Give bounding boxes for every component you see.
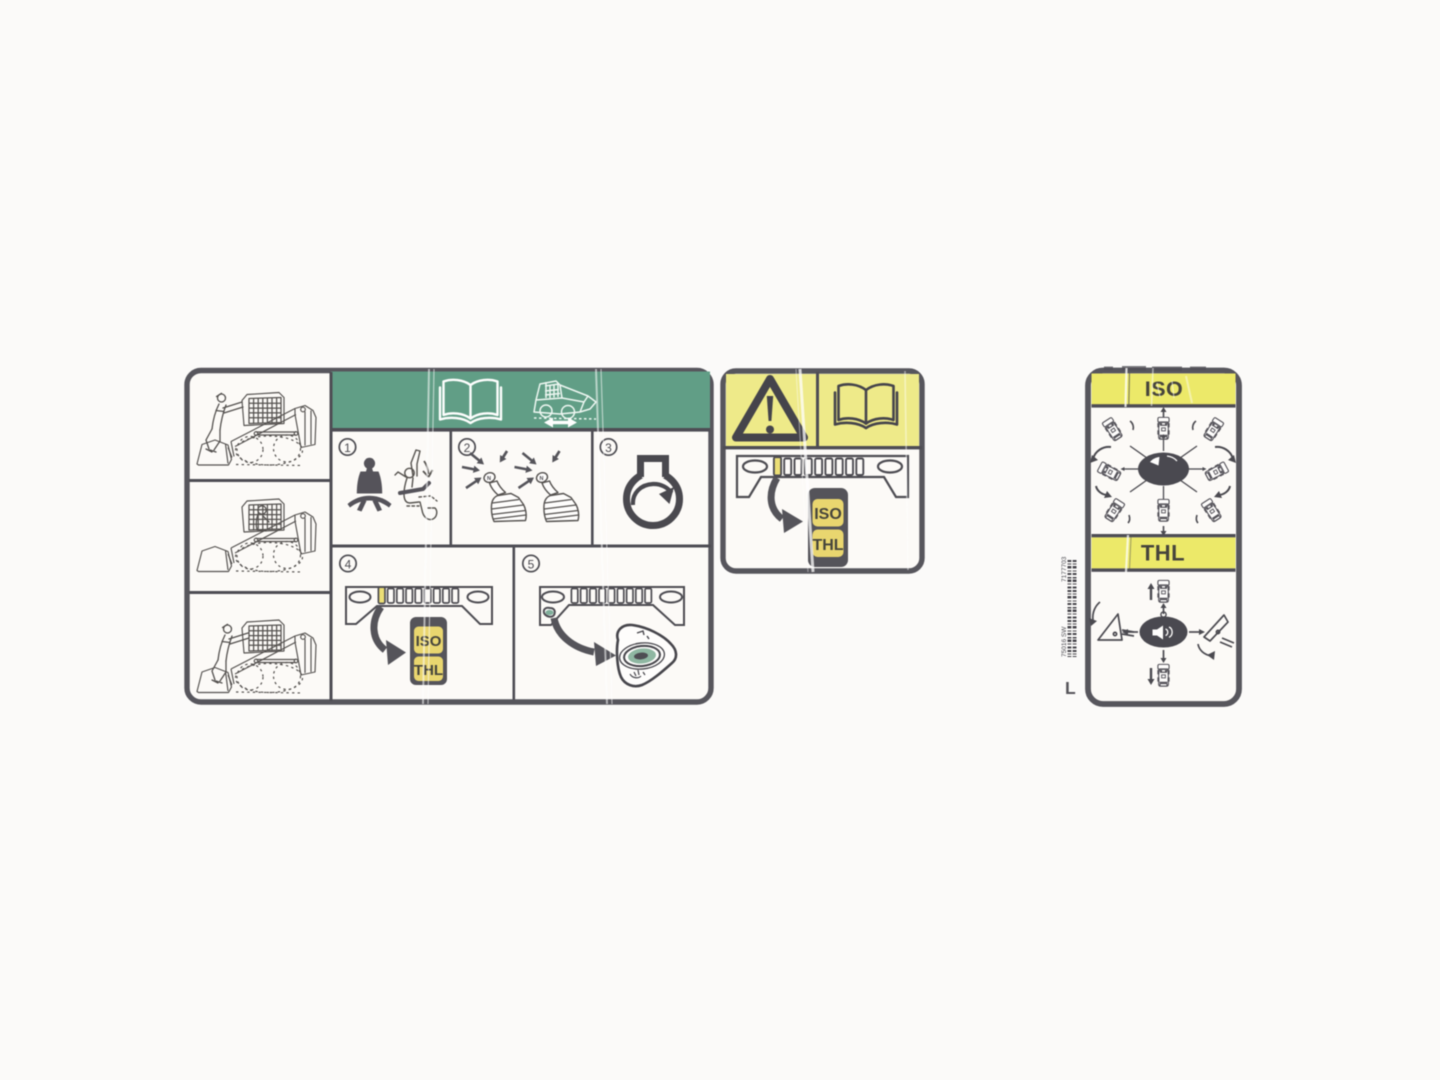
svg-text:75016 SW: 75016 SW <box>1061 626 1068 657</box>
svg-text:7177703: 7177703 <box>1061 556 1068 582</box>
svg-text:3: 3 <box>605 441 612 455</box>
svg-text:2: 2 <box>464 441 471 455</box>
svg-text:THL: THL <box>1141 541 1185 566</box>
svg-text:5: 5 <box>528 558 535 572</box>
svg-text:N: N <box>487 476 491 482</box>
svg-text:N: N <box>540 476 544 482</box>
svg-text:1: 1 <box>344 441 351 455</box>
svg-text:ISO: ISO <box>814 506 842 523</box>
svg-text:ISO: ISO <box>1145 377 1184 401</box>
svg-text:THL: THL <box>812 537 843 554</box>
svg-text:L: L <box>1065 678 1076 698</box>
svg-text:4: 4 <box>345 558 352 572</box>
